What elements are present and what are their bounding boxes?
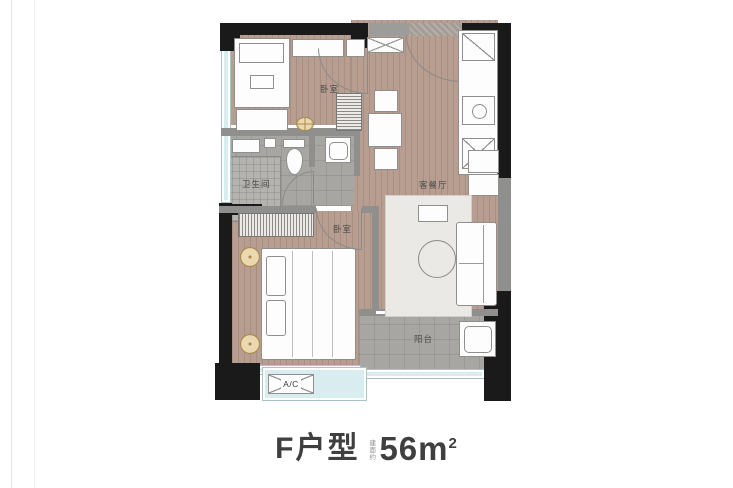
bed-top-pillow <box>239 43 284 63</box>
wall-bedroom-bottom-top-b <box>362 206 379 213</box>
wall-right-middle <box>498 178 511 291</box>
wardrobe-top-bedroom <box>336 93 362 131</box>
bed-top <box>234 38 290 108</box>
floorplan: A/C 卧室 卫生间 客餐厅 卧室 阳台 <box>212 13 512 403</box>
bed-top-tray <box>250 75 274 89</box>
wall-right-upper <box>498 23 511 178</box>
plan-title-row: F户型 建面约 56m2 <box>0 427 733 466</box>
stove-burner-circle <box>472 104 487 119</box>
wall-top <box>220 23 368 35</box>
entry-cabinet-crossbox-icon <box>367 37 404 53</box>
wall-bedroom-bottom-top-a <box>219 206 316 213</box>
left-window <box>221 48 231 203</box>
wall-bedroom-bottom-right <box>372 213 379 311</box>
dresser-top <box>236 109 288 131</box>
coffee-table <box>418 240 456 278</box>
wall-bottom-left-corner <box>215 363 260 400</box>
wall-bathroom-right <box>354 128 360 176</box>
area-unit: m <box>418 430 448 467</box>
wall-left-lower <box>219 203 232 365</box>
wardrobe-bottom-bedroom <box>238 213 314 237</box>
page-edge-line-2 <box>34 0 35 488</box>
label-bedroom-bottom: 卧室 <box>333 223 352 235</box>
balcony-window <box>359 369 485 379</box>
ac-unit-label: A/C <box>281 379 301 389</box>
nightstand-icon-a <box>240 247 260 267</box>
label-bedroom-top: 卧室 <box>320 83 339 95</box>
ac-unit-box: A/C <box>268 374 314 394</box>
bed-bottom-blanket <box>292 251 352 357</box>
toilet-tank <box>283 139 305 148</box>
wall-bathroom-inner <box>309 133 315 167</box>
plan-name: F户型 <box>275 432 359 466</box>
label-balcony: 阳台 <box>414 333 433 345</box>
washbasin-bowl <box>329 142 348 160</box>
nightstand-icon-b <box>240 334 260 354</box>
washing-machine-drum <box>464 326 492 353</box>
bed-bottom <box>261 248 356 360</box>
stove-icon <box>462 96 495 125</box>
washing-machine-icon <box>459 321 496 357</box>
sofa-backrest-line <box>483 225 484 303</box>
dining-chair-a <box>374 90 398 112</box>
page-edge-line <box>11 0 12 488</box>
bath-cabinet-b <box>264 138 276 148</box>
area-note: 建面约 <box>369 440 378 461</box>
sofa-cushion-line <box>459 263 483 264</box>
bath-cabinet-a <box>232 139 260 153</box>
label-bathroom: 卫生间 <box>242 178 271 190</box>
floorplan-page: A/C 卧室 卫生间 客餐厅 卧室 阳台 F户型 建面约 56m2 <box>0 0 733 488</box>
bed-bottom-pillow-b <box>266 300 286 336</box>
dining-table <box>368 113 402 147</box>
side-cabinet-a <box>468 150 499 173</box>
area-value: 56m2 <box>379 427 457 466</box>
entry-landing <box>369 23 409 36</box>
washbasin <box>325 137 351 163</box>
side-cabinet-b <box>468 174 499 196</box>
label-living-dining: 客餐厅 <box>419 179 448 191</box>
area-number: 56 <box>379 430 418 467</box>
tv-table <box>418 205 448 222</box>
ceiling-light-icon <box>296 117 314 131</box>
sofa <box>456 222 497 306</box>
fridge-icon <box>462 33 495 61</box>
bed-bottom-pillow-a <box>266 256 286 296</box>
dining-chair-b <box>374 148 398 170</box>
area-sup: 2 <box>449 435 458 452</box>
